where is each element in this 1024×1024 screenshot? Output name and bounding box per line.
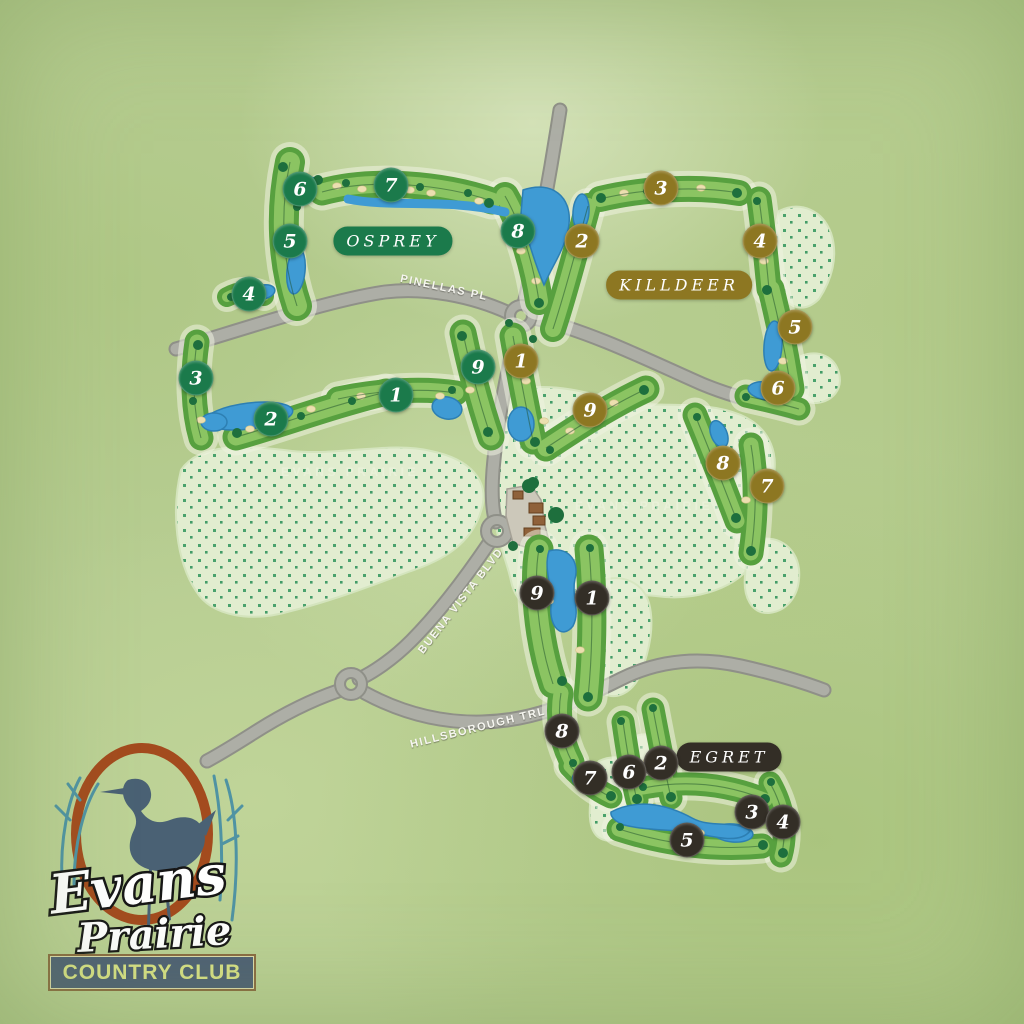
club-logo: Evans Prairie <box>0 0 1024 1024</box>
course-map-canvas: EVANS PRAIRIEEVANS PRAIRIEPINELLAS PLBUE… <box>0 0 1024 1024</box>
country-club-plate: COUNTRY CLUB <box>48 954 256 991</box>
country-club-label: COUNTRY CLUB <box>63 961 242 985</box>
